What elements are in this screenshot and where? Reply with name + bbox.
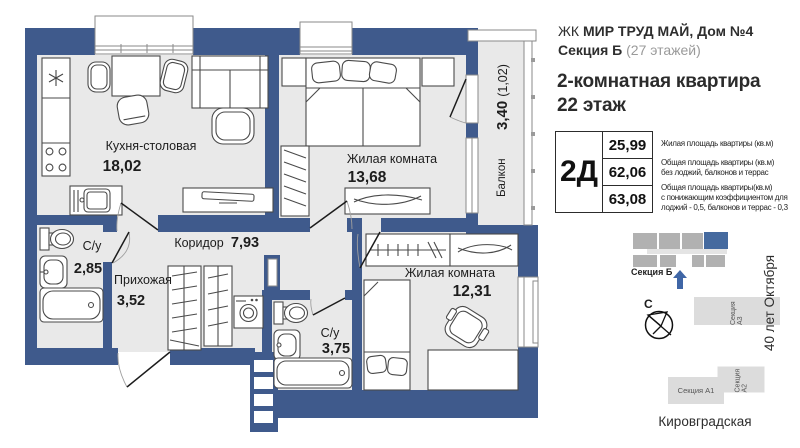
room-area-bathroom1: 2,85 — [74, 261, 102, 277]
nightstand-icon — [422, 58, 454, 86]
spec-values: 25,99 62,06 63,08 — [603, 132, 652, 212]
bathtub-icon — [274, 358, 352, 388]
project-prefix: ЖК — [558, 23, 583, 39]
room-name-bedroom1: Жилая комната — [347, 152, 437, 166]
room-name-hall: Прихожая — [114, 273, 172, 287]
sofa-icon — [192, 56, 268, 108]
kitchen-sink-icon — [70, 186, 122, 215]
room-name-balcony: Балкон — [496, 158, 508, 197]
floorplan-drawing: Кухня-столовая 18,02 Жилая комната 13,68… — [0, 0, 540, 448]
street-label-right: 40 лет Октября — [762, 243, 782, 363]
building-block — [633, 233, 657, 249]
building-block — [633, 255, 657, 267]
apartment-floor: 22 этаж — [557, 94, 760, 118]
spec-value-living: 25,99 — [603, 132, 652, 159]
section-name: Секция Б — [558, 42, 622, 58]
wardrobe-icon — [204, 266, 232, 346]
room-area-kitchen: 18,02 — [103, 158, 142, 175]
dresser-icon — [345, 188, 430, 214]
wardrobe-icon — [168, 266, 201, 350]
apartment-title: 2-комнатная квартира 22 этаж — [557, 70, 760, 118]
section-pointer-arrow-icon — [673, 270, 687, 290]
chair-icon — [116, 94, 150, 127]
room-area-hall: 3,52 — [117, 293, 145, 309]
street-label-bottom: Кировградская — [635, 414, 775, 429]
room-area-balcony: 3,40(1,02) — [494, 64, 511, 130]
spec-label-living: Жилая площадь квартиры (кв.м) — [661, 139, 800, 149]
building-block — [692, 255, 704, 267]
floorplan-page: Кухня-столовая 18,02 Жилая комната 13,68… — [0, 0, 800, 448]
current-section-block — [704, 232, 728, 249]
spec-label-total: Общая площадь квартиры (кв.м) без лоджий… — [661, 158, 800, 178]
washing-machine-icon — [234, 296, 263, 328]
kitchen-bay-window-icon — [95, 16, 193, 54]
bedroom1-bay-window-icon — [300, 22, 352, 54]
desk-icon — [428, 350, 518, 390]
apartment-type: 2-комнатная квартира — [557, 70, 760, 94]
entrance-door-icon — [127, 352, 170, 387]
building-block — [660, 255, 676, 267]
toilet-icon — [274, 302, 308, 324]
project-name: МИР ТРУД МАЙ, Дом №4 — [583, 23, 753, 39]
room-name-corridor: Коридор — [174, 236, 223, 250]
room-area-bedroom1: 13,68 — [348, 169, 387, 186]
room-name-bathroom2: С/у — [321, 326, 341, 340]
building-block — [682, 233, 703, 249]
section-line: Секция Б (27 этажей) — [558, 41, 753, 60]
toilet-icon — [40, 228, 74, 250]
single-bed-icon — [364, 280, 410, 390]
nightstand-icon — [282, 58, 306, 86]
bathroom-sink-icon — [274, 330, 300, 360]
room-name-kitchen: Кухня-столовая — [106, 139, 197, 153]
building-strip — [647, 249, 727, 254]
spec-table: 2Д 25,99 62,06 63,08 — [555, 131, 653, 213]
spec-value-total-reduced: 63,08 — [603, 186, 652, 212]
project-header: ЖК МИР ТРУД МАЙ, Дом №4 Секция Б (27 эта… — [558, 22, 753, 60]
wardrobe-icon — [281, 146, 309, 216]
double-bed-icon — [306, 58, 420, 146]
armchair-icon — [212, 108, 254, 144]
spec-label-total-reduced: Общая площадь квартиры(кв.м) с понижающи… — [661, 183, 800, 212]
spec-value-total: 62,06 — [603, 159, 652, 186]
room-name-bedroom2: Жилая комната — [405, 266, 495, 280]
fridge-icon — [42, 58, 70, 176]
info-panel: ЖК МИР ТРУД МАЙ, Дом №4 Секция Б (27 эта… — [540, 0, 800, 448]
bathroom-sink-icon — [40, 256, 67, 288]
dining-table-icon — [112, 56, 160, 96]
duct-niche — [268, 259, 277, 286]
apartment-type-code: 2Д — [556, 132, 603, 212]
balcony-window-icon — [466, 75, 478, 213]
project-name-line: ЖК МИР ТРУД МАЙ, Дом №4 — [558, 22, 753, 41]
section-a1-block: Секция А1 — [668, 377, 724, 404]
bathtub-icon — [40, 288, 103, 322]
chair-icon — [88, 62, 110, 92]
compass-north-label: С — [644, 297, 653, 311]
room-area-corridor: 7,93 — [231, 235, 259, 251]
floors-note: (27 этажей) — [622, 42, 701, 58]
shelf-icon — [450, 234, 518, 266]
current-section-label: Секция Б — [631, 267, 672, 277]
room-name-bathroom1: С/у — [83, 239, 103, 253]
room-area-bedroom2: 12,31 — [453, 283, 492, 300]
building-block — [706, 255, 725, 267]
section-a2-block: Секция А2 — [718, 367, 765, 393]
building-block — [659, 233, 680, 249]
room-area-bathroom2: 3,75 — [322, 341, 350, 357]
tv-stand-icon — [183, 188, 273, 212]
wardrobe-icon — [366, 234, 450, 266]
compass-icon: С — [640, 296, 680, 344]
bedroom2-window-icon — [518, 277, 538, 347]
